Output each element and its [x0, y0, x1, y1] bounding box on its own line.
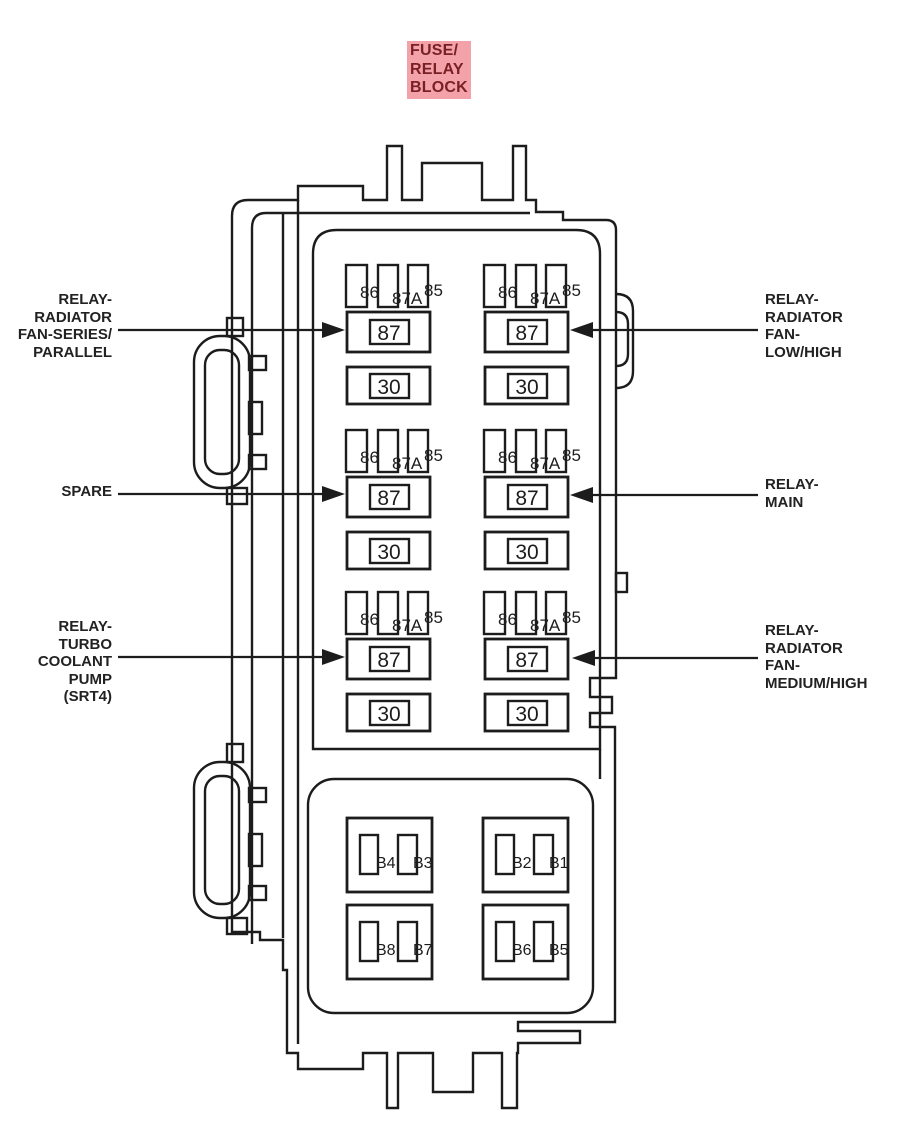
mount-bracket-bottom [194, 762, 250, 918]
fuse-label: B6 [512, 942, 532, 959]
pin-label-85: 85 [562, 281, 581, 300]
fuse-label: B2 [512, 855, 532, 872]
terminal-label-87: 87 [515, 322, 538, 345]
pin-label-86: 86 [360, 448, 379, 467]
pin-label-86: 86 [498, 610, 517, 629]
bracket-stub [227, 744, 243, 762]
terminal-label-30: 30 [377, 541, 400, 564]
terminal-label-30: 30 [515, 541, 538, 564]
pin-label-85: 85 [424, 281, 443, 300]
mount-bracket-top-inner [205, 350, 239, 474]
terminal-label-30: 30 [377, 703, 400, 726]
right-bump-inner [616, 312, 628, 366]
pin-label-87a: 87A [392, 454, 423, 473]
terminal-label-87: 87 [377, 487, 400, 510]
bracket-stub [227, 488, 247, 504]
pin-label-87a: 87A [530, 454, 561, 473]
fuse-box-b2-b1: B2 B1 [483, 818, 569, 892]
terminal-label-87: 87 [515, 487, 538, 510]
relay-main-footprint: 86 87A 85 87 30 [484, 430, 581, 569]
relay-radiator-fan-series-parallel-footprint: 86 87A 85 87 30 [346, 265, 443, 404]
fuse-label: B3 [413, 855, 433, 872]
pin-label-86: 86 [360, 283, 379, 302]
pin-label-87a: 87A [392, 616, 423, 635]
pin-label-86: 86 [360, 610, 379, 629]
terminal-label-30: 30 [377, 376, 400, 399]
pin-label-85: 85 [424, 446, 443, 465]
pin-label-85: 85 [424, 608, 443, 627]
fuse-label: B4 [376, 855, 396, 872]
relay-radiator-fan-low-high-footprint: 86 87A 85 87 30 [484, 265, 581, 404]
terminal-label-87: 87 [377, 649, 400, 672]
fuse-box-b6-b5: B6 B5 [483, 905, 569, 979]
terminal-label-30: 30 [515, 703, 538, 726]
fuse-label: B7 [413, 942, 433, 959]
fuse-label: B5 [549, 942, 569, 959]
fuse-box-b4-b3: B4 B3 [347, 818, 433, 892]
pin-label-85: 85 [562, 608, 581, 627]
arrow-right-row1 [570, 322, 758, 338]
pin-label-86: 86 [498, 448, 517, 467]
fuse-label: B8 [376, 942, 396, 959]
mount-bracket-top [194, 336, 250, 488]
fuse-box-b8-b7: B8 B7 [347, 905, 433, 979]
arrow-right-row2 [570, 487, 758, 503]
pin-label-87a: 87A [530, 289, 561, 308]
spare-relay-footprint: 86 87A 85 87 30 [346, 430, 443, 569]
right-bump-outer [616, 294, 633, 388]
fuse-label: B1 [549, 855, 569, 872]
pin-label-86: 86 [498, 283, 517, 302]
block-line-art: 86 87A 85 87 30 86 87A 85 87 30 [0, 0, 900, 1141]
relay-turbo-coolant-pump-footprint: 86 87A 85 87 30 [346, 592, 443, 731]
bracket-stub [227, 318, 243, 336]
pin-label-87a: 87A [530, 616, 561, 635]
mount-bracket-bottom-inner [205, 776, 239, 904]
terminal-label-30: 30 [515, 376, 538, 399]
pin-label-87a: 87A [392, 289, 423, 308]
terminal-label-87: 87 [515, 649, 538, 672]
right-tab [616, 573, 627, 592]
terminal-label-87: 87 [377, 322, 400, 345]
pin-label-85: 85 [562, 446, 581, 465]
relay-radiator-fan-medium-high-footprint: 86 87A 85 87 30 [484, 592, 581, 731]
fuse-relay-block-diagram: FUSE/ RELAY BLOCK RELAY- RADIATOR FAN-SE… [0, 0, 900, 1141]
